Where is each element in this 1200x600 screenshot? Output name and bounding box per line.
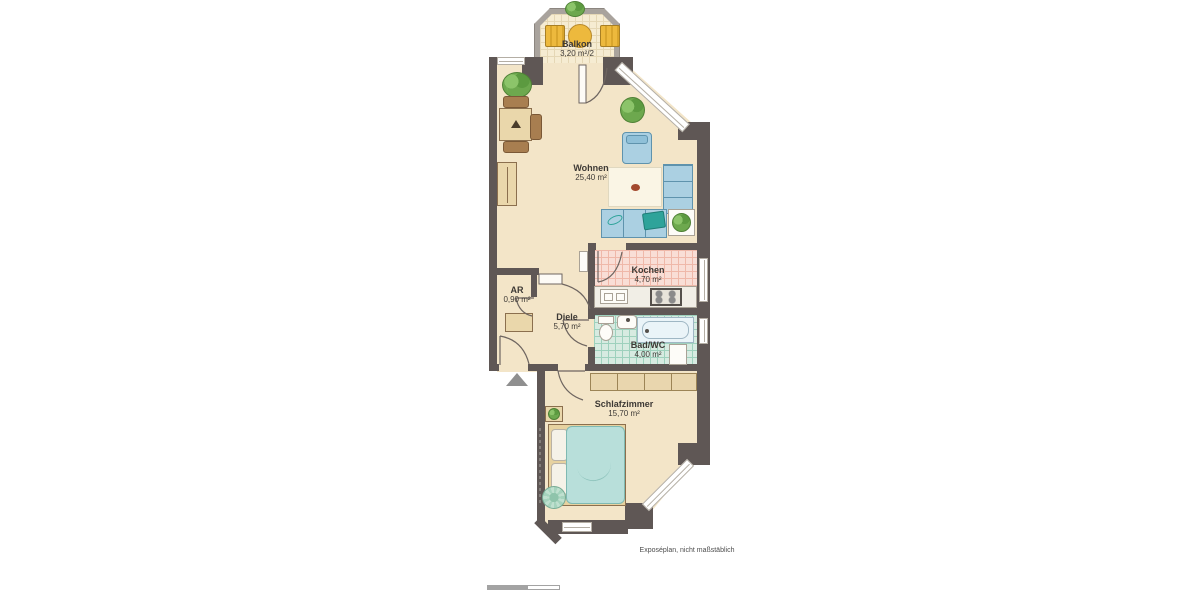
balcony-door-arc: [586, 68, 607, 103]
entrance-door-arc: [500, 336, 529, 365]
room-name: Schlafzimmer: [578, 399, 670, 409]
label-bad: Bad/WC 4,00 m²: [616, 340, 680, 360]
label-kochen: Kochen 4,70 m²: [617, 265, 679, 285]
bedroom-door-arc: [558, 371, 585, 400]
label-schlafzimmer: Schlafzimmer 15,70 m²: [578, 399, 670, 419]
balcony-door-leaf: [579, 65, 586, 103]
label-wohnen: Wohnen 25,40 m²: [558, 163, 624, 183]
hall-door-leaf: [539, 274, 562, 284]
room-area: 5,70 m²: [540, 322, 594, 331]
room-area: 3,20 m²/2: [537, 49, 617, 58]
room-area: 4,00 m²: [616, 350, 680, 359]
label-balkon: Balkon 3,20 m²/2: [537, 39, 617, 59]
room-name: Wohnen: [558, 163, 624, 173]
scale-bar-dark: [487, 585, 527, 590]
room-name: Balkon: [537, 39, 617, 49]
label-ar: AR 0,90 m²: [494, 285, 540, 305]
room-name: AR: [494, 285, 540, 295]
room-area: 25,40 m²: [558, 173, 624, 182]
disclaimer-text: Exposéplan, nicht maßstäblich: [612, 547, 762, 554]
room-name: Kochen: [617, 265, 679, 275]
hall-door-arc: [562, 284, 590, 309]
floor-plan-page: Balkon 3,20 m²/2 Wohnen 25,40 m² Kochen …: [0, 0, 1200, 600]
room-area: 15,70 m²: [578, 409, 670, 418]
room-area: 0,90 m²: [494, 295, 540, 304]
scale-bar-light: [527, 585, 560, 590]
room-name: Bad/WC: [616, 340, 680, 350]
label-diele: Diele 5,70 m²: [540, 312, 594, 332]
room-name: Diele: [540, 312, 594, 322]
room-area: 4,70 m²: [617, 275, 679, 284]
door-swings-layer: [0, 0, 1200, 600]
